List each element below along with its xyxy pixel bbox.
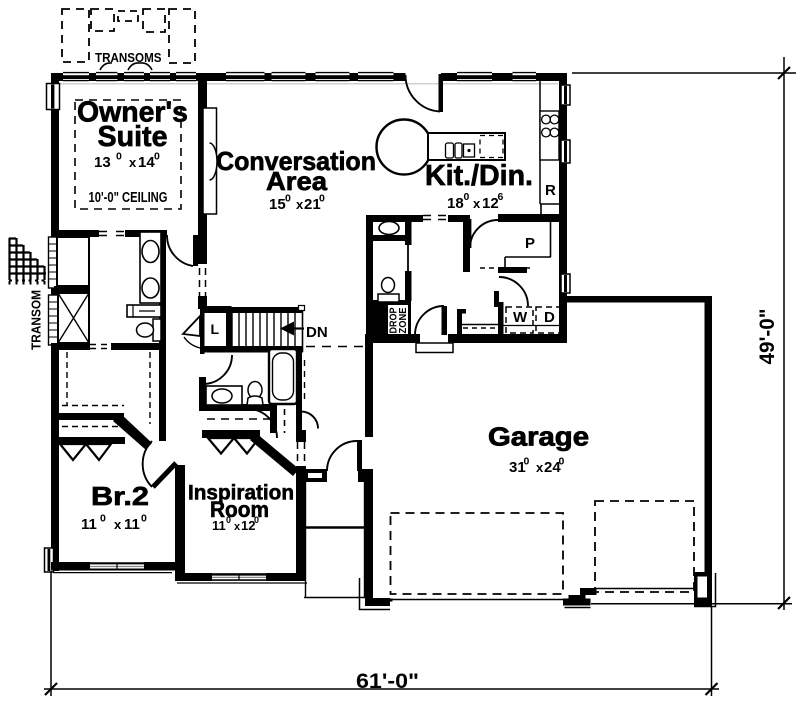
svg-text:11: 11: [212, 518, 226, 533]
svg-text:0: 0: [254, 515, 259, 525]
svg-text:L: L: [211, 321, 220, 337]
svg-text:0: 0: [319, 193, 325, 205]
svg-text:0: 0: [116, 151, 122, 163]
svg-text:x: x: [536, 460, 544, 475]
svg-text:0: 0: [464, 191, 470, 203]
svg-text:R: R: [545, 182, 556, 199]
svg-text:DN: DN: [306, 324, 328, 341]
svg-text:0: 0: [141, 513, 147, 525]
svg-text:11: 11: [124, 516, 140, 533]
svg-text:13: 13: [94, 154, 111, 171]
svg-text:TRANSOM: TRANSOM: [30, 290, 44, 350]
svg-text:12: 12: [482, 195, 499, 212]
svg-text:ZONE: ZONE: [398, 307, 409, 333]
svg-text:6: 6: [498, 191, 504, 203]
svg-text:0: 0: [559, 456, 565, 468]
svg-text:0: 0: [226, 515, 231, 525]
svg-text:11: 11: [81, 516, 97, 533]
svg-text:14: 14: [138, 154, 155, 171]
svg-text:D: D: [544, 309, 555, 326]
svg-text:x: x: [473, 196, 481, 211]
svg-text:0: 0: [524, 456, 530, 468]
svg-text:0: 0: [154, 151, 160, 163]
svg-text:49'-0": 49'-0": [755, 309, 779, 365]
svg-text:x: x: [114, 517, 122, 532]
svg-text:Area: Area: [266, 166, 328, 196]
svg-text:Kit./Din.: Kit./Din.: [425, 160, 533, 192]
svg-text:x: x: [129, 155, 137, 170]
svg-text:W: W: [513, 309, 528, 326]
svg-text:15: 15: [269, 196, 286, 213]
svg-text:Garage: Garage: [488, 424, 589, 452]
svg-text:0: 0: [100, 513, 106, 525]
svg-text:x: x: [234, 521, 241, 533]
svg-text:Br.2: Br.2: [91, 481, 149, 511]
svg-text:18: 18: [447, 195, 464, 212]
svg-text:0: 0: [285, 193, 291, 205]
svg-text:P: P: [525, 235, 535, 252]
svg-text:61'-0": 61'-0": [356, 670, 419, 693]
svg-text:x: x: [296, 197, 304, 212]
svg-text:10'-0" CEILING: 10'-0" CEILING: [89, 190, 168, 206]
svg-text:Suite: Suite: [98, 121, 168, 153]
svg-text:TRANSOMS: TRANSOMS: [95, 50, 162, 65]
